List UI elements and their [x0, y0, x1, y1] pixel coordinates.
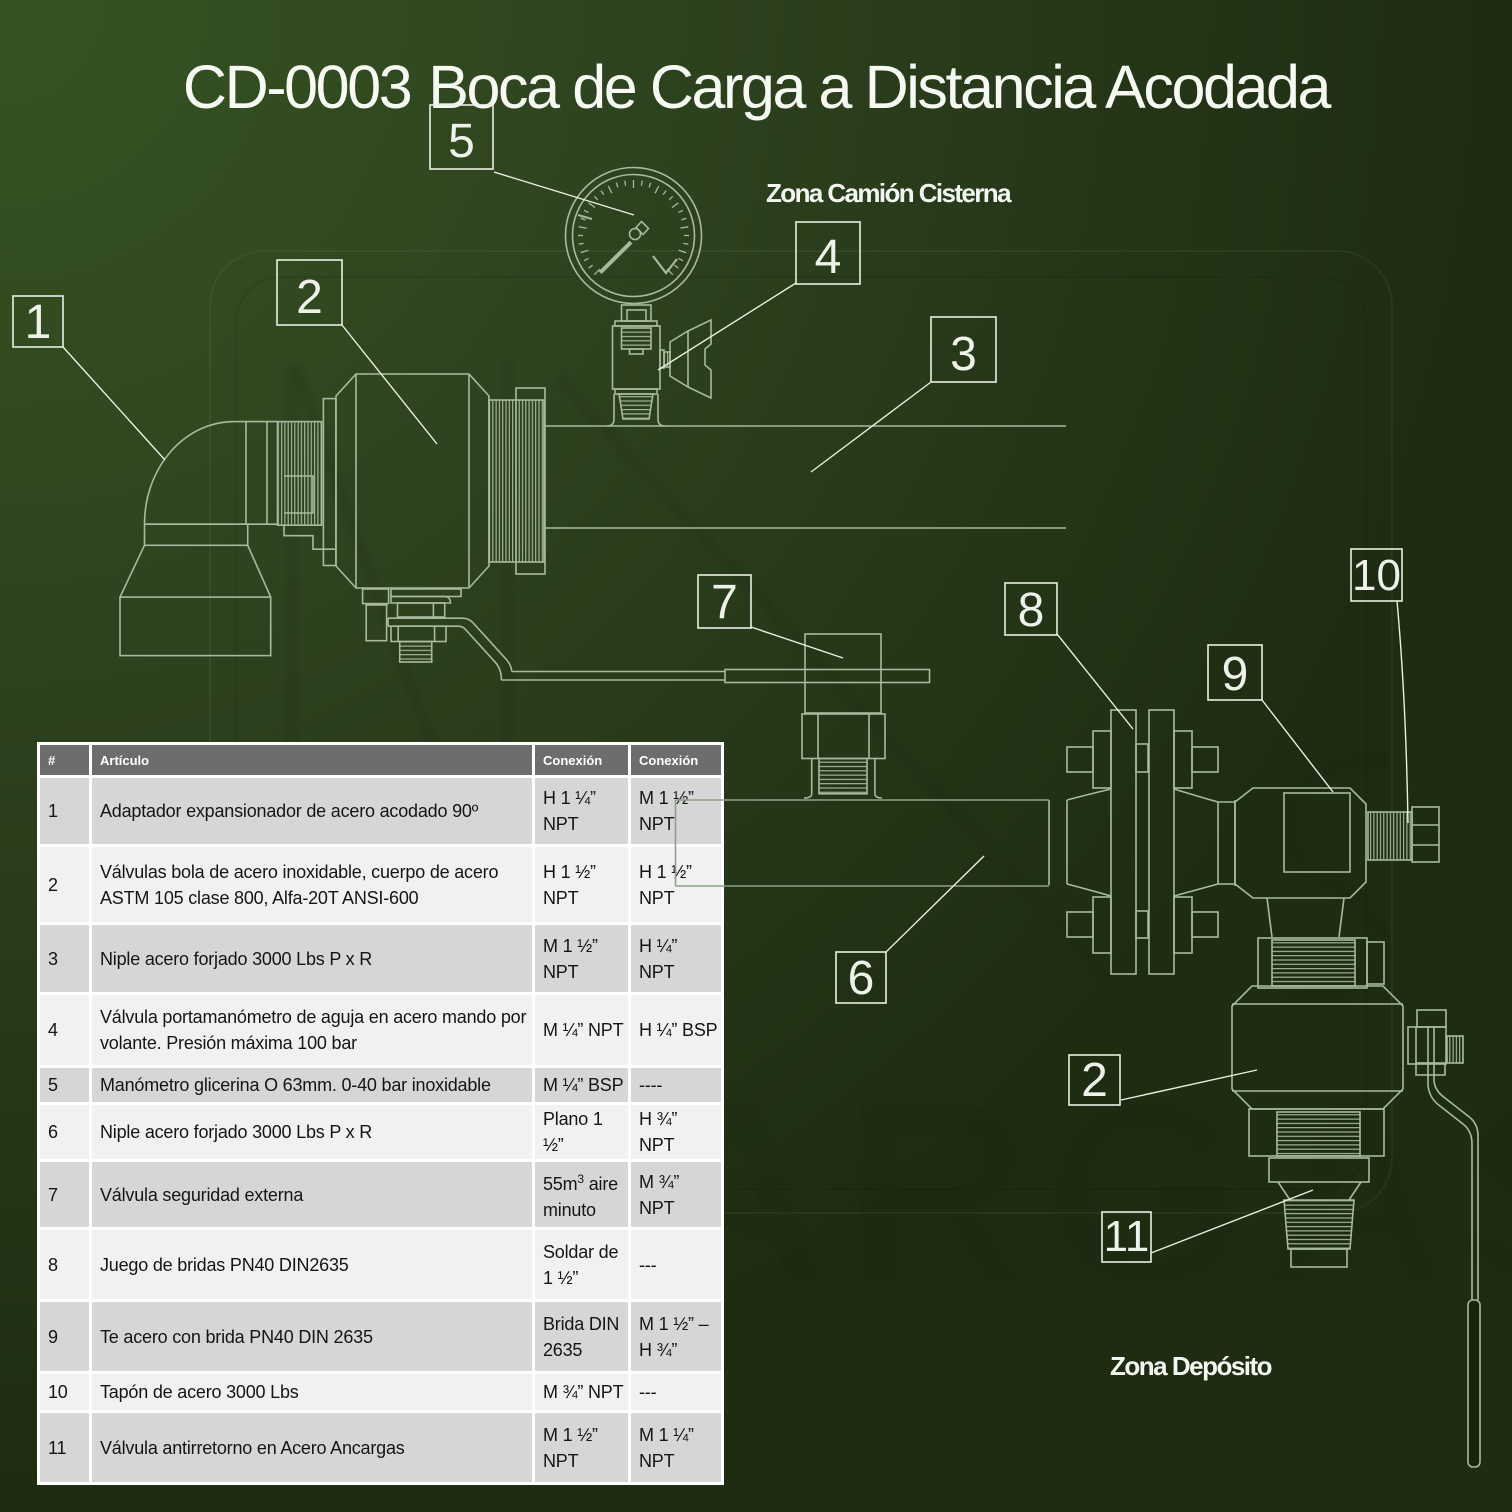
svg-text:5: 5: [448, 115, 475, 168]
svg-text:4: 4: [815, 231, 842, 284]
svg-text:2: 2: [1081, 1054, 1108, 1107]
svg-text:1: 1: [25, 296, 52, 349]
svg-text:7: 7: [711, 576, 738, 629]
svg-text:3: 3: [950, 328, 977, 381]
svg-text:8: 8: [1018, 584, 1045, 637]
svg-text:10: 10: [1352, 551, 1401, 600]
svg-text:2: 2: [296, 271, 323, 324]
svg-text:9: 9: [1222, 648, 1249, 701]
svg-text:11: 11: [1104, 1212, 1150, 1261]
svg-text:6: 6: [848, 952, 875, 1005]
